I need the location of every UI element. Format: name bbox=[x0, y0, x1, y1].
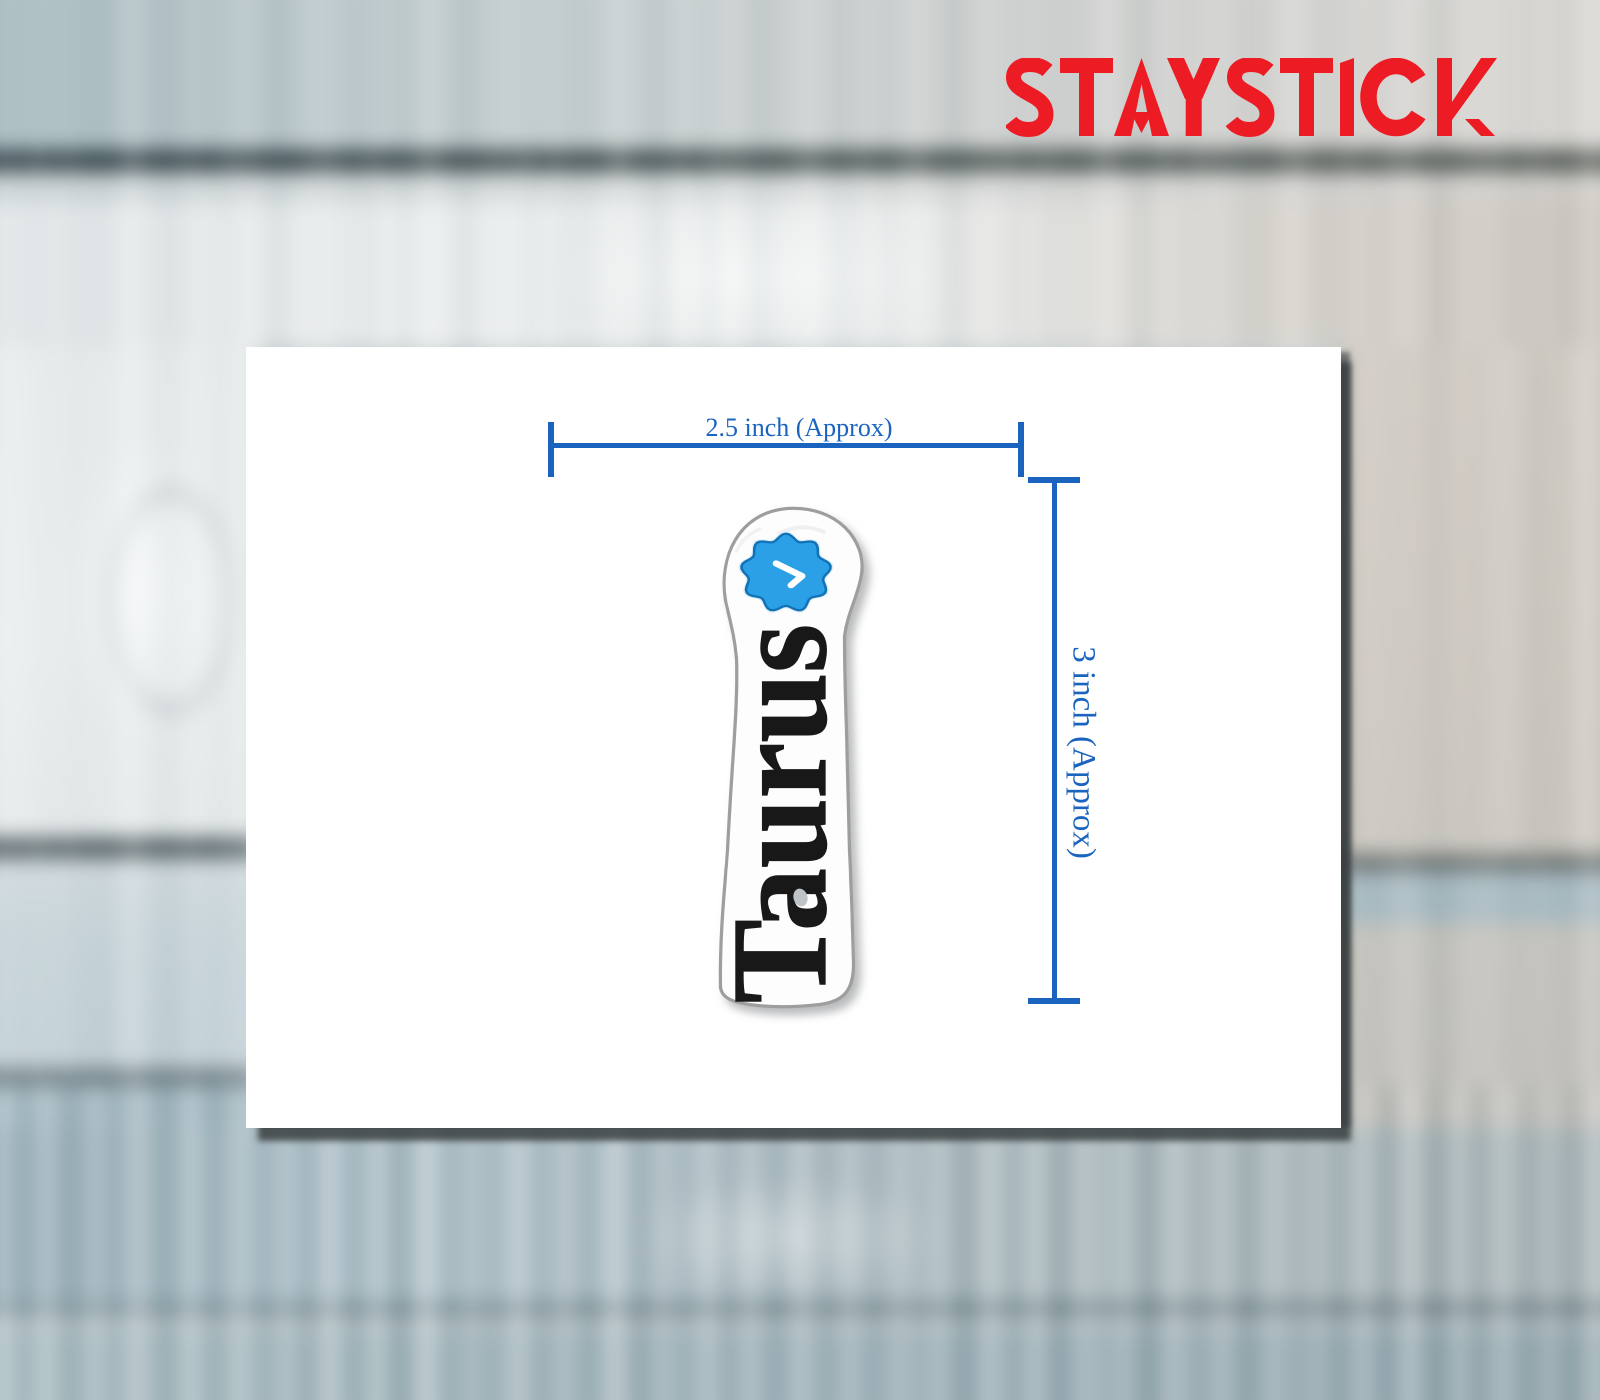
svg-text:Taurus: Taurus bbox=[704, 624, 855, 1003]
